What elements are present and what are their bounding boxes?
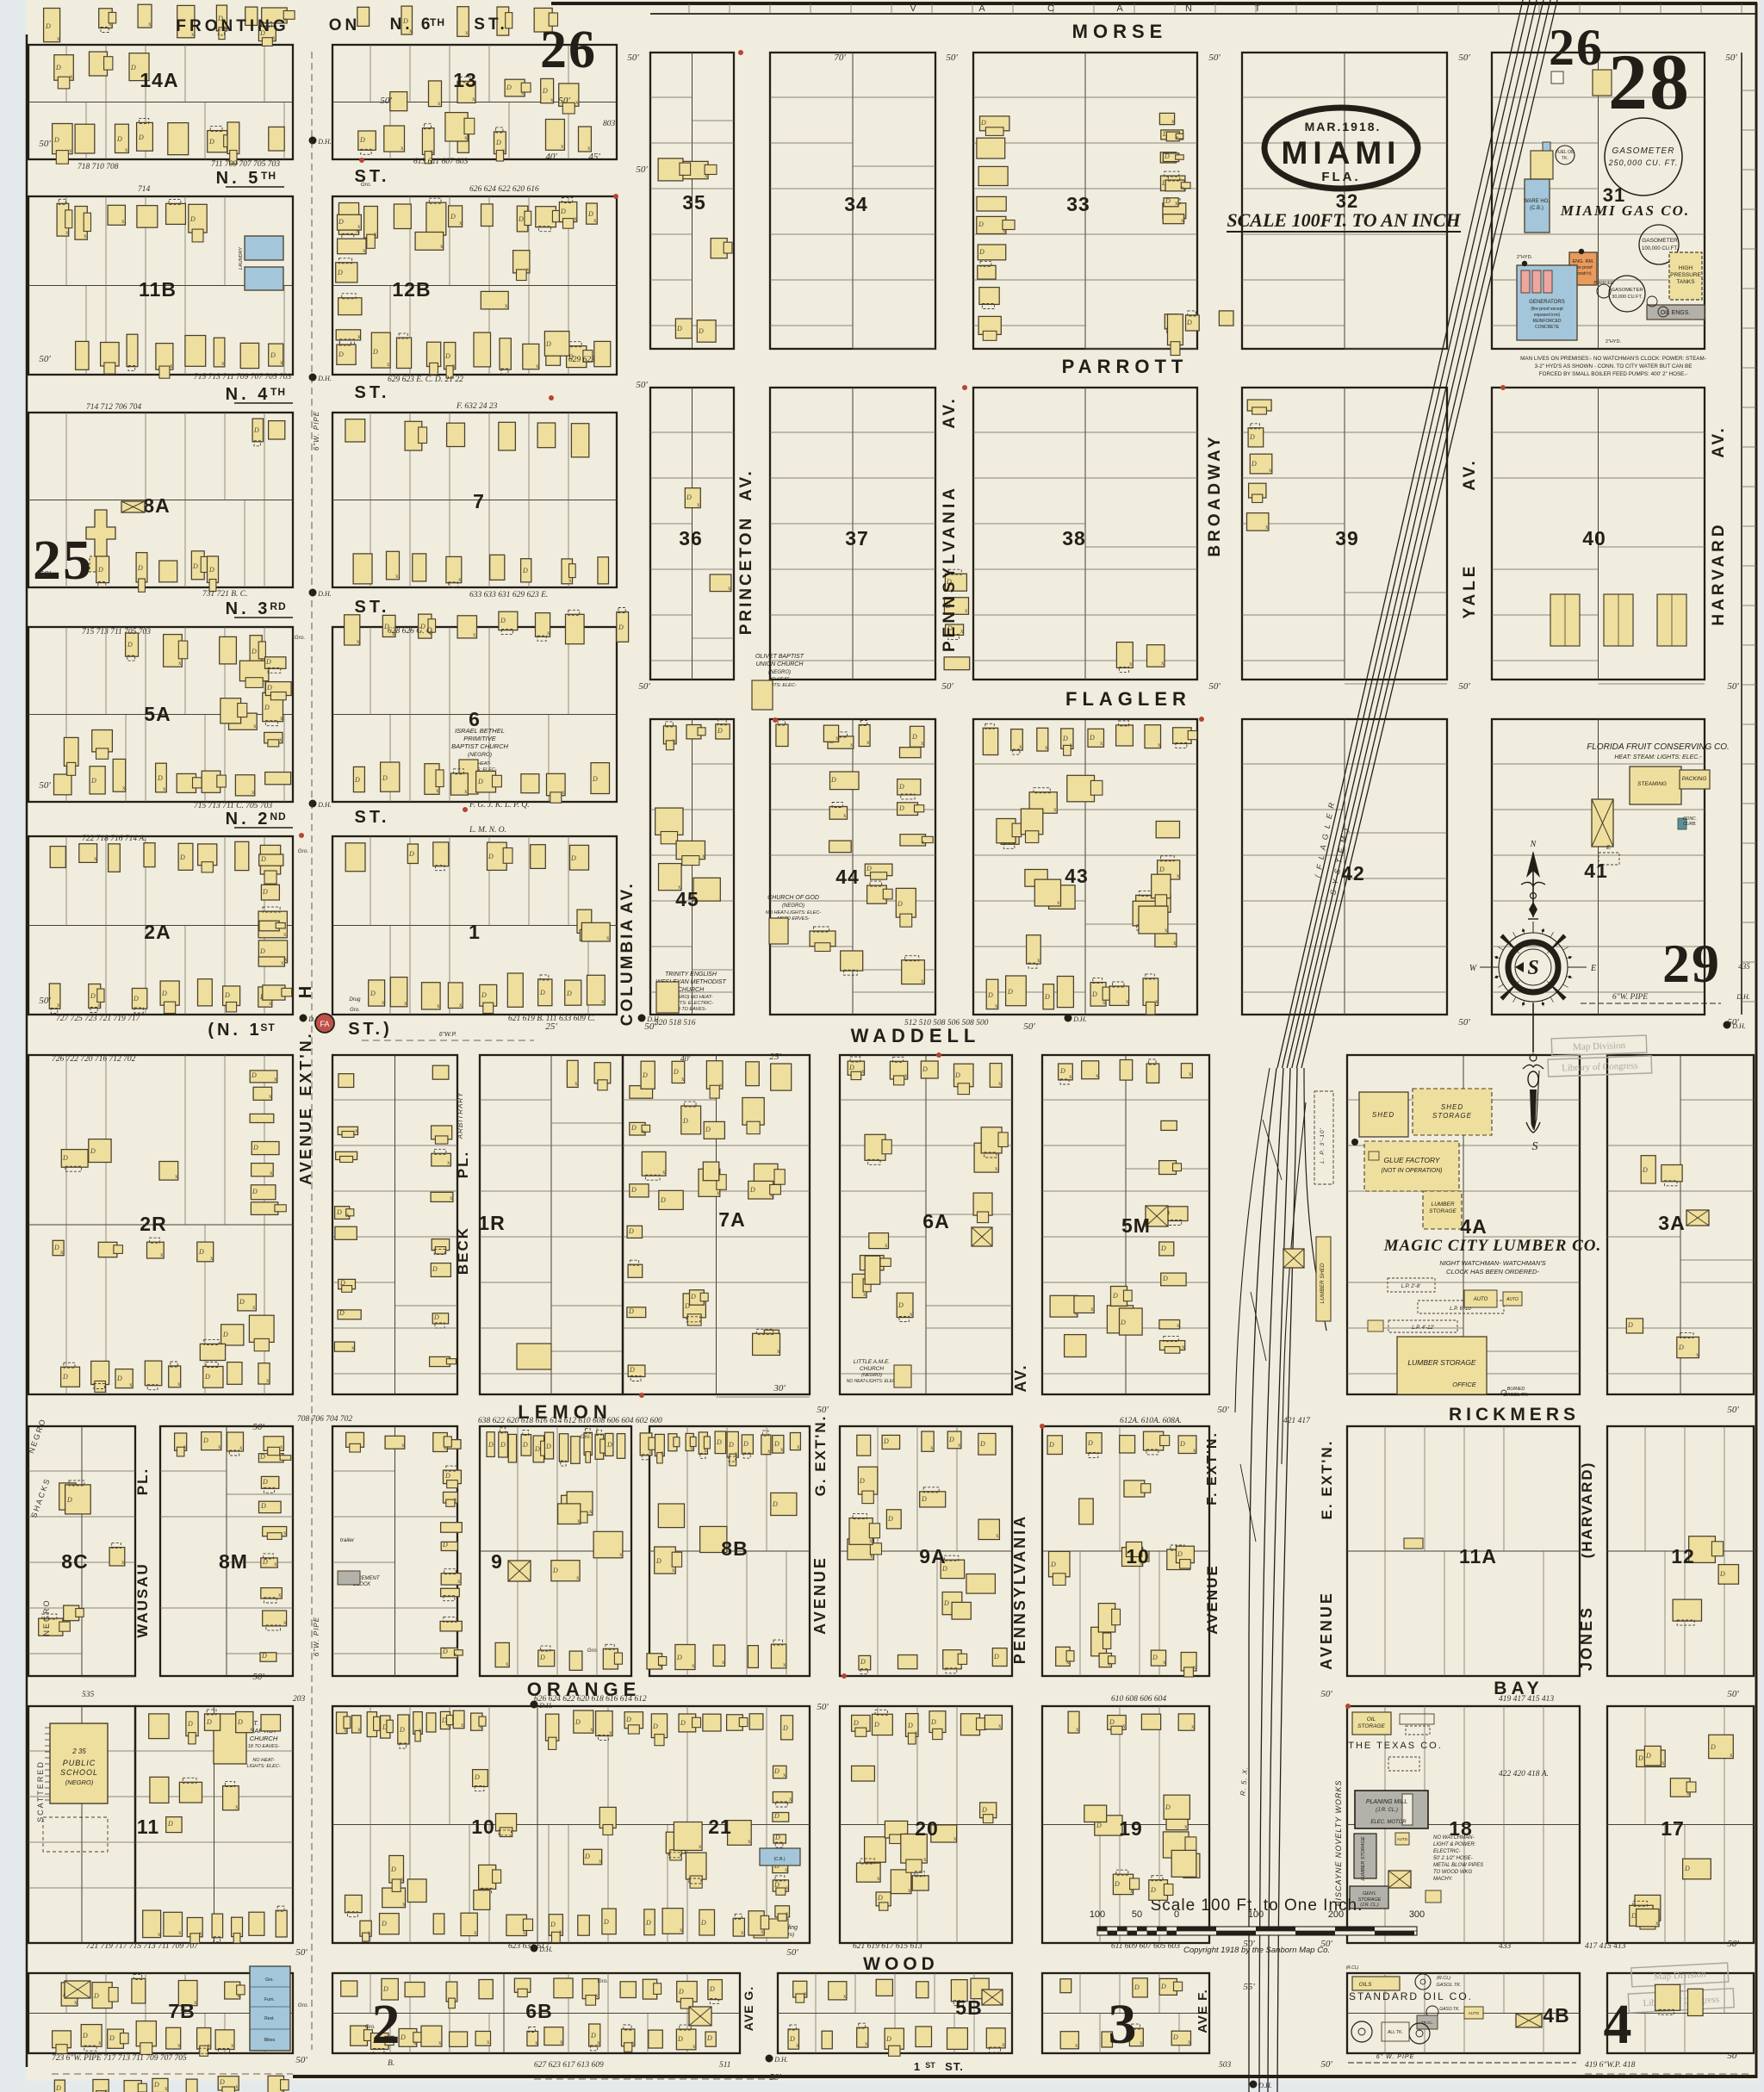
- svg-text:D.H.: D.H.: [646, 1015, 661, 1023]
- svg-text:55': 55': [1243, 1982, 1255, 1992]
- svg-text:x: x: [783, 1772, 786, 1779]
- svg-text:L. M. N. O.: L. M. N. O.: [469, 826, 506, 835]
- svg-text:D: D: [677, 2035, 683, 2043]
- svg-text:D: D: [907, 1722, 913, 1729]
- svg-text:x: x: [521, 90, 525, 96]
- svg-text:D: D: [630, 1124, 637, 1132]
- svg-text:D: D: [742, 1440, 748, 1448]
- svg-text:E.: E.: [1606, 846, 1612, 851]
- svg-text:D: D: [1114, 1880, 1120, 1888]
- svg-text:ELECTRIC-: ELECTRIC-: [1433, 1849, 1461, 1854]
- svg-text:x: x: [662, 1169, 666, 1176]
- svg-text:x: x: [472, 96, 475, 102]
- svg-text:2: 2: [372, 1993, 402, 2056]
- svg-text:42: 42: [1341, 862, 1365, 885]
- svg-text:D: D: [206, 1718, 212, 1726]
- svg-text:18: 18: [1449, 1817, 1473, 1840]
- svg-text:D: D: [522, 1441, 528, 1449]
- svg-text:D.H.: D.H.: [317, 375, 332, 382]
- svg-text:ST.: ST.: [355, 598, 390, 617]
- svg-text:x: x: [506, 1661, 509, 1667]
- svg-text:D: D: [370, 990, 376, 997]
- svg-text:AV.: AV.: [1012, 1363, 1029, 1392]
- svg-text:D: D: [1165, 1803, 1171, 1811]
- svg-text:ST.: ST.: [355, 383, 390, 402]
- svg-text:x: x: [1177, 1322, 1180, 1329]
- svg-text:GLUE FACTORY: GLUE FACTORY: [1383, 1156, 1440, 1164]
- svg-text:50': 50': [627, 53, 639, 63]
- svg-text:SHED: SHED: [1441, 1103, 1463, 1111]
- svg-text:D: D: [630, 1186, 637, 1194]
- svg-text:40': 40': [680, 1055, 692, 1064]
- svg-text:x: x: [357, 1726, 361, 1733]
- svg-text:D: D: [866, 865, 872, 872]
- svg-text:D: D: [709, 1985, 715, 1993]
- svg-text:x: x: [208, 2042, 211, 2049]
- svg-text:PRINCETON: PRINCETON: [737, 516, 755, 636]
- svg-text:x: x: [235, 2083, 239, 2090]
- svg-text:x: x: [1181, 217, 1184, 224]
- svg-text:x: x: [562, 789, 565, 796]
- svg-text:50': 50': [295, 1947, 307, 1958]
- svg-text:(NEGRO): (NEGRO): [861, 1373, 882, 1378]
- svg-text:D: D: [686, 494, 692, 501]
- svg-text:x: x: [673, 737, 676, 744]
- svg-text:x: x: [575, 99, 579, 106]
- svg-text:GASOMETER: GASOMETER: [1642, 238, 1678, 244]
- svg-text:D: D: [1165, 197, 1171, 205]
- svg-text:L. P. 3'-10': L. P. 3'-10': [1320, 1127, 1326, 1164]
- svg-text:18 TO EAVES-: 18 TO EAVES-: [675, 1007, 707, 1012]
- svg-text:N. 5: N. 5: [216, 169, 262, 188]
- svg-text:D: D: [62, 1373, 68, 1381]
- svg-text:50': 50': [1727, 2051, 1739, 2061]
- svg-text:x: x: [231, 2042, 234, 2049]
- svg-text:Gro.: Gro.: [298, 848, 309, 854]
- svg-text:722 718 716 714 A.: 722 718 716 714 A.: [82, 835, 146, 843]
- svg-text:C: C: [1047, 3, 1054, 14]
- svg-text:x: x: [866, 739, 870, 746]
- svg-text:x: x: [835, 735, 839, 742]
- svg-text:D: D: [55, 64, 61, 71]
- svg-text:D: D: [1630, 1912, 1637, 1920]
- svg-text:D: D: [539, 989, 545, 996]
- svg-text:25': 25': [545, 1021, 557, 1032]
- svg-text:ON: ON: [329, 16, 361, 34]
- svg-text:x: x: [473, 631, 476, 638]
- svg-text:D: D: [339, 1309, 345, 1317]
- svg-text:5M: 5M: [1121, 1214, 1151, 1237]
- svg-text:711 709 707 705: 711 709 707 705 703: [211, 160, 280, 169]
- svg-text:x: x: [459, 220, 463, 227]
- svg-text:2A: 2A: [144, 921, 171, 943]
- svg-text:25: 25: [33, 529, 93, 592]
- svg-text:E: E: [1590, 964, 1596, 973]
- svg-text:x: x: [619, 1551, 623, 1558]
- svg-text:3-2" HYD'S AS SHOWN - CONN. TO: 3-2" HYD'S AS SHOWN - CONN. TO CITY WATE…: [1535, 363, 1693, 369]
- svg-text:x: x: [642, 1128, 645, 1135]
- svg-text:D: D: [338, 218, 344, 226]
- svg-text:D: D: [1678, 1344, 1684, 1351]
- svg-text:x: x: [523, 1929, 526, 1936]
- svg-text:D: D: [873, 1721, 879, 1729]
- svg-text:ALL TK.: ALL TK.: [1388, 2030, 1403, 2035]
- svg-text:D: D: [442, 1648, 448, 1655]
- svg-text:x: x: [387, 361, 390, 368]
- svg-text:D: D: [773, 1881, 780, 1889]
- svg-text:x: x: [1045, 744, 1048, 751]
- svg-text:50: 50: [1132, 1909, 1142, 1920]
- svg-text:x: x: [447, 1723, 450, 1729]
- svg-text:x: x: [239, 1444, 243, 1451]
- svg-text:COLUMBIA: COLUMBIA: [618, 917, 637, 1026]
- svg-text:x: x: [279, 736, 283, 743]
- svg-text:LIGHTS: ELEC-: LIGHTS: ELEC-: [246, 1764, 280, 1769]
- svg-text:x: x: [1076, 1726, 1079, 1733]
- svg-text:x: x: [587, 145, 591, 152]
- svg-text:x: x: [452, 363, 456, 369]
- svg-text:D: D: [922, 1065, 928, 1073]
- svg-text:2"HYD.: 2"HYD.: [1517, 255, 1533, 260]
- svg-text:FRONTING: FRONTING: [176, 17, 289, 35]
- svg-text:x: x: [699, 1843, 702, 1850]
- svg-text:D: D: [690, 1293, 696, 1301]
- svg-text:D: D: [773, 1812, 780, 1820]
- svg-text:x: x: [547, 630, 550, 636]
- svg-text:D: D: [717, 727, 723, 735]
- svg-text:D: D: [887, 1515, 893, 1523]
- svg-text:D: D: [359, 136, 365, 144]
- svg-text:D: D: [1007, 988, 1013, 996]
- svg-text:D.H.: D.H.: [1736, 993, 1750, 1001]
- svg-text:D: D: [522, 567, 528, 574]
- svg-text:Gro.: Gro.: [581, 1434, 592, 1440]
- svg-text:D: D: [187, 1720, 193, 1728]
- svg-text:D: D: [550, 1921, 556, 1928]
- svg-text:(NEGRO): (NEGRO): [782, 903, 804, 909]
- svg-text:x: x: [357, 333, 361, 340]
- svg-text:D: D: [1164, 152, 1170, 160]
- svg-text:x: x: [1070, 742, 1073, 748]
- svg-text:x: x: [351, 1344, 355, 1351]
- svg-text:x: x: [965, 607, 968, 614]
- svg-text:435: 435: [1738, 962, 1750, 971]
- svg-text:2"HYD.: 2"HYD.: [1606, 339, 1622, 345]
- svg-text:x: x: [870, 1553, 873, 1560]
- svg-text:x: x: [923, 1856, 927, 1863]
- svg-text:NO HEAT-: NO HEAT-: [252, 1758, 275, 1763]
- svg-text:D: D: [90, 992, 96, 1000]
- svg-text:250,000 CU. FT.: 250,000 CU. FT.: [1608, 158, 1679, 167]
- svg-text:D: D: [382, 1723, 388, 1731]
- svg-text:x: x: [454, 1651, 457, 1658]
- svg-text:D: D: [789, 2035, 795, 2043]
- svg-text:2R: 2R: [140, 1213, 166, 1235]
- svg-text:GASO.TK.: GASO.TK.: [1439, 2007, 1460, 2012]
- svg-text:x: x: [404, 1000, 407, 1007]
- svg-text:D: D: [161, 990, 167, 997]
- svg-text:803: 803: [603, 120, 616, 128]
- svg-text:x: x: [160, 1251, 164, 1258]
- svg-text:D: D: [570, 854, 576, 862]
- svg-text:GEN'L: GEN'L: [1363, 1891, 1376, 1896]
- svg-text:D: D: [251, 1071, 257, 1079]
- svg-text:D: D: [542, 87, 548, 95]
- svg-text:D: D: [911, 733, 917, 741]
- svg-text:x: x: [401, 145, 404, 152]
- svg-text:x: x: [609, 1729, 612, 1736]
- svg-text:TANKS: TANKS: [1676, 279, 1695, 285]
- svg-text:x: x: [252, 1304, 256, 1311]
- svg-text:50': 50': [1458, 53, 1470, 63]
- svg-text:x: x: [960, 628, 964, 635]
- svg-text:x: x: [250, 1726, 253, 1733]
- svg-text:50': 50': [1320, 1689, 1332, 1699]
- svg-text:726 722 720 716 712: 726 722 720 716 712 702: [52, 1055, 136, 1064]
- svg-text:D: D: [506, 84, 512, 91]
- svg-text:32: 32: [1336, 190, 1358, 212]
- svg-text:HEAT: STEAM: LIGHTS: ELEC.-: HEAT: STEAM: LIGHTS: ELEC.-: [1614, 754, 1702, 760]
- svg-text:x: x: [269, 1093, 272, 1100]
- svg-text:D: D: [680, 1719, 686, 1727]
- svg-text:AV.: AV.: [737, 469, 755, 501]
- svg-text:SCALE 100FT. TO AN INCH: SCALE 100FT. TO AN INCH: [1227, 209, 1461, 231]
- svg-text:D.H.: D.H.: [1072, 1015, 1087, 1023]
- svg-text:x: x: [661, 1450, 664, 1456]
- svg-text:D: D: [954, 1071, 960, 1079]
- svg-text:D: D: [339, 1279, 345, 1287]
- svg-text:x: x: [680, 1927, 683, 1934]
- svg-text:x: x: [1090, 1306, 1094, 1313]
- svg-text:D: D: [898, 1301, 904, 1309]
- svg-text:D: D: [705, 1126, 711, 1133]
- svg-text:x: x: [270, 1170, 273, 1176]
- svg-text:F. 632 24 23: F. 632 24 23: [456, 402, 498, 411]
- svg-text:D: D: [1062, 735, 1068, 742]
- svg-text:D: D: [676, 325, 682, 332]
- svg-text:D: D: [481, 991, 487, 999]
- svg-text:x: x: [395, 573, 399, 580]
- svg-text:D: D: [338, 351, 344, 358]
- svg-text:2 35: 2 35: [71, 1747, 86, 1755]
- svg-text:x: x: [717, 1189, 720, 1196]
- svg-text:D: D: [488, 853, 494, 860]
- svg-text:D: D: [652, 1723, 658, 1730]
- svg-text:621 619 617 615 613: 621 619 617 615 613: [853, 1942, 922, 1951]
- svg-text:433: 433: [1499, 1942, 1512, 1951]
- svg-text:50': 50': [1320, 1939, 1332, 1949]
- svg-text:x: x: [1003, 227, 1006, 234]
- svg-text:D: D: [1162, 1275, 1168, 1282]
- svg-text:D: D: [265, 658, 271, 666]
- svg-text:x: x: [1176, 134, 1179, 141]
- svg-text:TH: TH: [430, 16, 445, 28]
- svg-text:x: x: [1182, 1344, 1185, 1350]
- svg-text:D: D: [545, 1443, 551, 1450]
- svg-text:50': 50': [636, 165, 648, 175]
- svg-text:D: D: [1642, 1166, 1648, 1174]
- svg-text:RD: RD: [270, 600, 286, 612]
- svg-text:LUMBER STORAGE: LUMBER STORAGE: [1407, 1358, 1476, 1367]
- svg-text:6B: 6B: [525, 2000, 552, 2022]
- svg-text:MORSE: MORSE: [1072, 21, 1168, 42]
- svg-text:x: x: [908, 1887, 911, 1894]
- svg-text:x: x: [272, 34, 276, 41]
- svg-text:WARE HO.: WARE HO.: [1524, 199, 1550, 204]
- svg-text:x: x: [175, 1173, 178, 1180]
- svg-text:D: D: [167, 1820, 173, 1828]
- svg-text:AVENUE: AVENUE: [811, 1555, 829, 1635]
- svg-text:PARROTT: PARROTT: [1062, 356, 1189, 377]
- svg-text:AV.: AV.: [941, 396, 959, 429]
- svg-text:FLA.: FLA.: [1321, 170, 1360, 184]
- svg-text:x: x: [444, 1444, 447, 1451]
- svg-text:D: D: [660, 1196, 666, 1204]
- svg-text:D: D: [545, 340, 551, 348]
- svg-text:x: x: [252, 789, 255, 796]
- svg-text:D: D: [948, 1436, 954, 1443]
- svg-text:RICKMERS: RICKMERS: [1449, 1405, 1580, 1425]
- svg-text:x: x: [502, 147, 506, 154]
- svg-text:7B: 7B: [168, 2000, 195, 2022]
- svg-text:LIGHT & POWER:: LIGHT & POWER:: [1433, 1842, 1476, 1847]
- svg-text:50': 50': [252, 1422, 264, 1432]
- svg-text:(fire proof except: (fire proof except: [1531, 307, 1563, 312]
- svg-text:PL.: PL.: [134, 1468, 151, 1495]
- svg-text:D: D: [618, 624, 624, 631]
- svg-text:11A: 11A: [1459, 1545, 1497, 1567]
- svg-text:D: D: [45, 22, 51, 30]
- svg-text:x: x: [697, 501, 700, 508]
- svg-text:D: D: [138, 133, 144, 141]
- svg-text:x: x: [464, 134, 468, 141]
- svg-text:GASOMETER: GASOMETER: [1611, 288, 1643, 293]
- svg-text:x: x: [735, 1450, 738, 1457]
- svg-text:D: D: [252, 1188, 258, 1195]
- svg-text:MAR.1918.: MAR.1918.: [1305, 120, 1382, 133]
- svg-text:ST.: ST.: [474, 16, 507, 34]
- svg-text:x: x: [221, 360, 225, 367]
- svg-text:x: x: [1173, 940, 1177, 947]
- svg-text:x: x: [659, 1662, 662, 1669]
- svg-text:6"W. PIPE: 6"W. PIPE: [1612, 993, 1648, 1002]
- svg-text:D: D: [270, 351, 276, 359]
- svg-text:x: x: [183, 1443, 187, 1450]
- svg-text:D: D: [1048, 1441, 1054, 1449]
- svg-text:(C.B.): (C.B.): [1530, 206, 1543, 211]
- svg-text:CLOCK HAS BEEN ORDERED-: CLOCK HAS BEEN ORDERED-: [1446, 1268, 1539, 1276]
- svg-text:D: D: [337, 269, 343, 276]
- svg-text:19: 19: [1119, 1817, 1143, 1840]
- svg-text:4A: 4A: [1460, 1215, 1487, 1238]
- svg-text:D: D: [262, 1478, 268, 1486]
- svg-text:x: x: [690, 1444, 693, 1451]
- svg-text:(NEGRO): (NEGRO): [468, 752, 492, 758]
- svg-text:45': 45': [588, 152, 600, 162]
- svg-text:D: D: [830, 776, 836, 784]
- svg-text:D.H.: D.H.: [317, 138, 332, 146]
- svg-text:D: D: [518, 215, 524, 223]
- svg-text:50': 50': [39, 139, 51, 149]
- svg-text:PACKING: PACKING: [1682, 776, 1707, 782]
- svg-text:D: D: [208, 566, 214, 574]
- svg-text:G. EXT'N.: G. EXT'N.: [812, 1415, 829, 1497]
- svg-text:x: x: [953, 1835, 957, 1842]
- svg-text:D: D: [500, 617, 506, 624]
- svg-text:715 713 711 705 703: 715 713 711 705 703: [82, 628, 151, 636]
- svg-text:x: x: [1057, 899, 1060, 906]
- svg-text:LUMBER STORAGE: LUMBER STORAGE: [1361, 1836, 1366, 1881]
- svg-text:708 706 704 702: 708 706 704 702: [297, 1415, 352, 1424]
- svg-text:x: x: [1066, 1659, 1070, 1666]
- svg-text:21: 21: [708, 1816, 732, 1838]
- svg-text:200: 200: [1328, 1909, 1344, 1920]
- svg-text:x: x: [1165, 927, 1168, 934]
- svg-text:D: D: [93, 1992, 99, 2000]
- svg-text:D: D: [1160, 1245, 1166, 1252]
- svg-text:610 608 606 604: 610 608 606 604: [1111, 1695, 1166, 1704]
- svg-text:50': 50': [1727, 1689, 1739, 1699]
- svg-text:CURB.: CURB.: [1683, 822, 1697, 827]
- svg-text:x: x: [283, 1619, 287, 1626]
- svg-text:12: 12: [1671, 1545, 1695, 1567]
- svg-text:LUMBER SHED: LUMBER SHED: [1320, 1263, 1326, 1303]
- svg-text:x: x: [535, 2039, 538, 2046]
- svg-text:x: x: [454, 1496, 457, 1503]
- svg-text:D: D: [782, 1724, 788, 1732]
- svg-text:x: x: [368, 1929, 371, 1936]
- svg-text:x: x: [574, 215, 577, 222]
- svg-text:D: D: [97, 566, 103, 574]
- svg-text:CHURCH: CHURCH: [250, 1735, 278, 1742]
- svg-text:535: 535: [82, 1691, 95, 1699]
- svg-text:PRIMITIVE: PRIMITIVE: [463, 735, 497, 742]
- svg-text:LITTLE A.M.E.: LITTLE A.M.E.: [854, 1359, 891, 1365]
- svg-text:D.H.: D.H.: [1731, 1022, 1746, 1030]
- svg-text:D: D: [495, 139, 501, 146]
- svg-text:x: x: [474, 1929, 477, 1936]
- svg-text:26: 26: [1549, 19, 1604, 76]
- svg-text:D: D: [706, 2034, 712, 2042]
- svg-text:511: 511: [719, 2061, 731, 2070]
- svg-text:D: D: [260, 855, 266, 863]
- svg-text:50': 50': [39, 354, 51, 364]
- svg-text:x: x: [843, 1993, 847, 2000]
- svg-text:x: x: [597, 2039, 600, 2046]
- svg-text:D: D: [1152, 1654, 1158, 1661]
- svg-text:D: D: [1249, 433, 1255, 441]
- svg-text:GASOL.TK.: GASOL.TK.: [1436, 1983, 1461, 1988]
- svg-text:STANDARD OIL CO.: STANDARD OIL CO.: [1349, 1990, 1473, 2002]
- svg-text:422 420 418 A.: 422 420 418 A.: [1499, 1770, 1549, 1779]
- svg-text:FLORIDA FRUIT CONSERVING CO.: FLORIDA FRUIT CONSERVING CO.: [1587, 742, 1730, 752]
- svg-text:x: x: [1662, 1760, 1665, 1766]
- svg-text:50' 2 1/2" HOSE-: 50' 2 1/2" HOSE-: [1433, 1856, 1473, 1861]
- svg-text:x: x: [1102, 999, 1106, 1006]
- svg-text:50': 50': [1725, 53, 1737, 63]
- svg-text:Gro.: Gro.: [587, 1648, 599, 1654]
- svg-text:100: 100: [1248, 1909, 1264, 1920]
- svg-text:x: x: [355, 1127, 358, 1134]
- svg-text:Gro.: Gro.: [598, 1978, 609, 1984]
- svg-text:x: x: [748, 1838, 751, 1845]
- svg-text:x: x: [440, 243, 444, 250]
- svg-text:D: D: [222, 1331, 228, 1338]
- svg-text:FA: FA: [320, 1020, 329, 1028]
- svg-text:28: 28: [1608, 38, 1691, 126]
- svg-text:419 417 415 413: 419 417 415 413: [1499, 1695, 1554, 1704]
- svg-text:x: x: [672, 1567, 675, 1574]
